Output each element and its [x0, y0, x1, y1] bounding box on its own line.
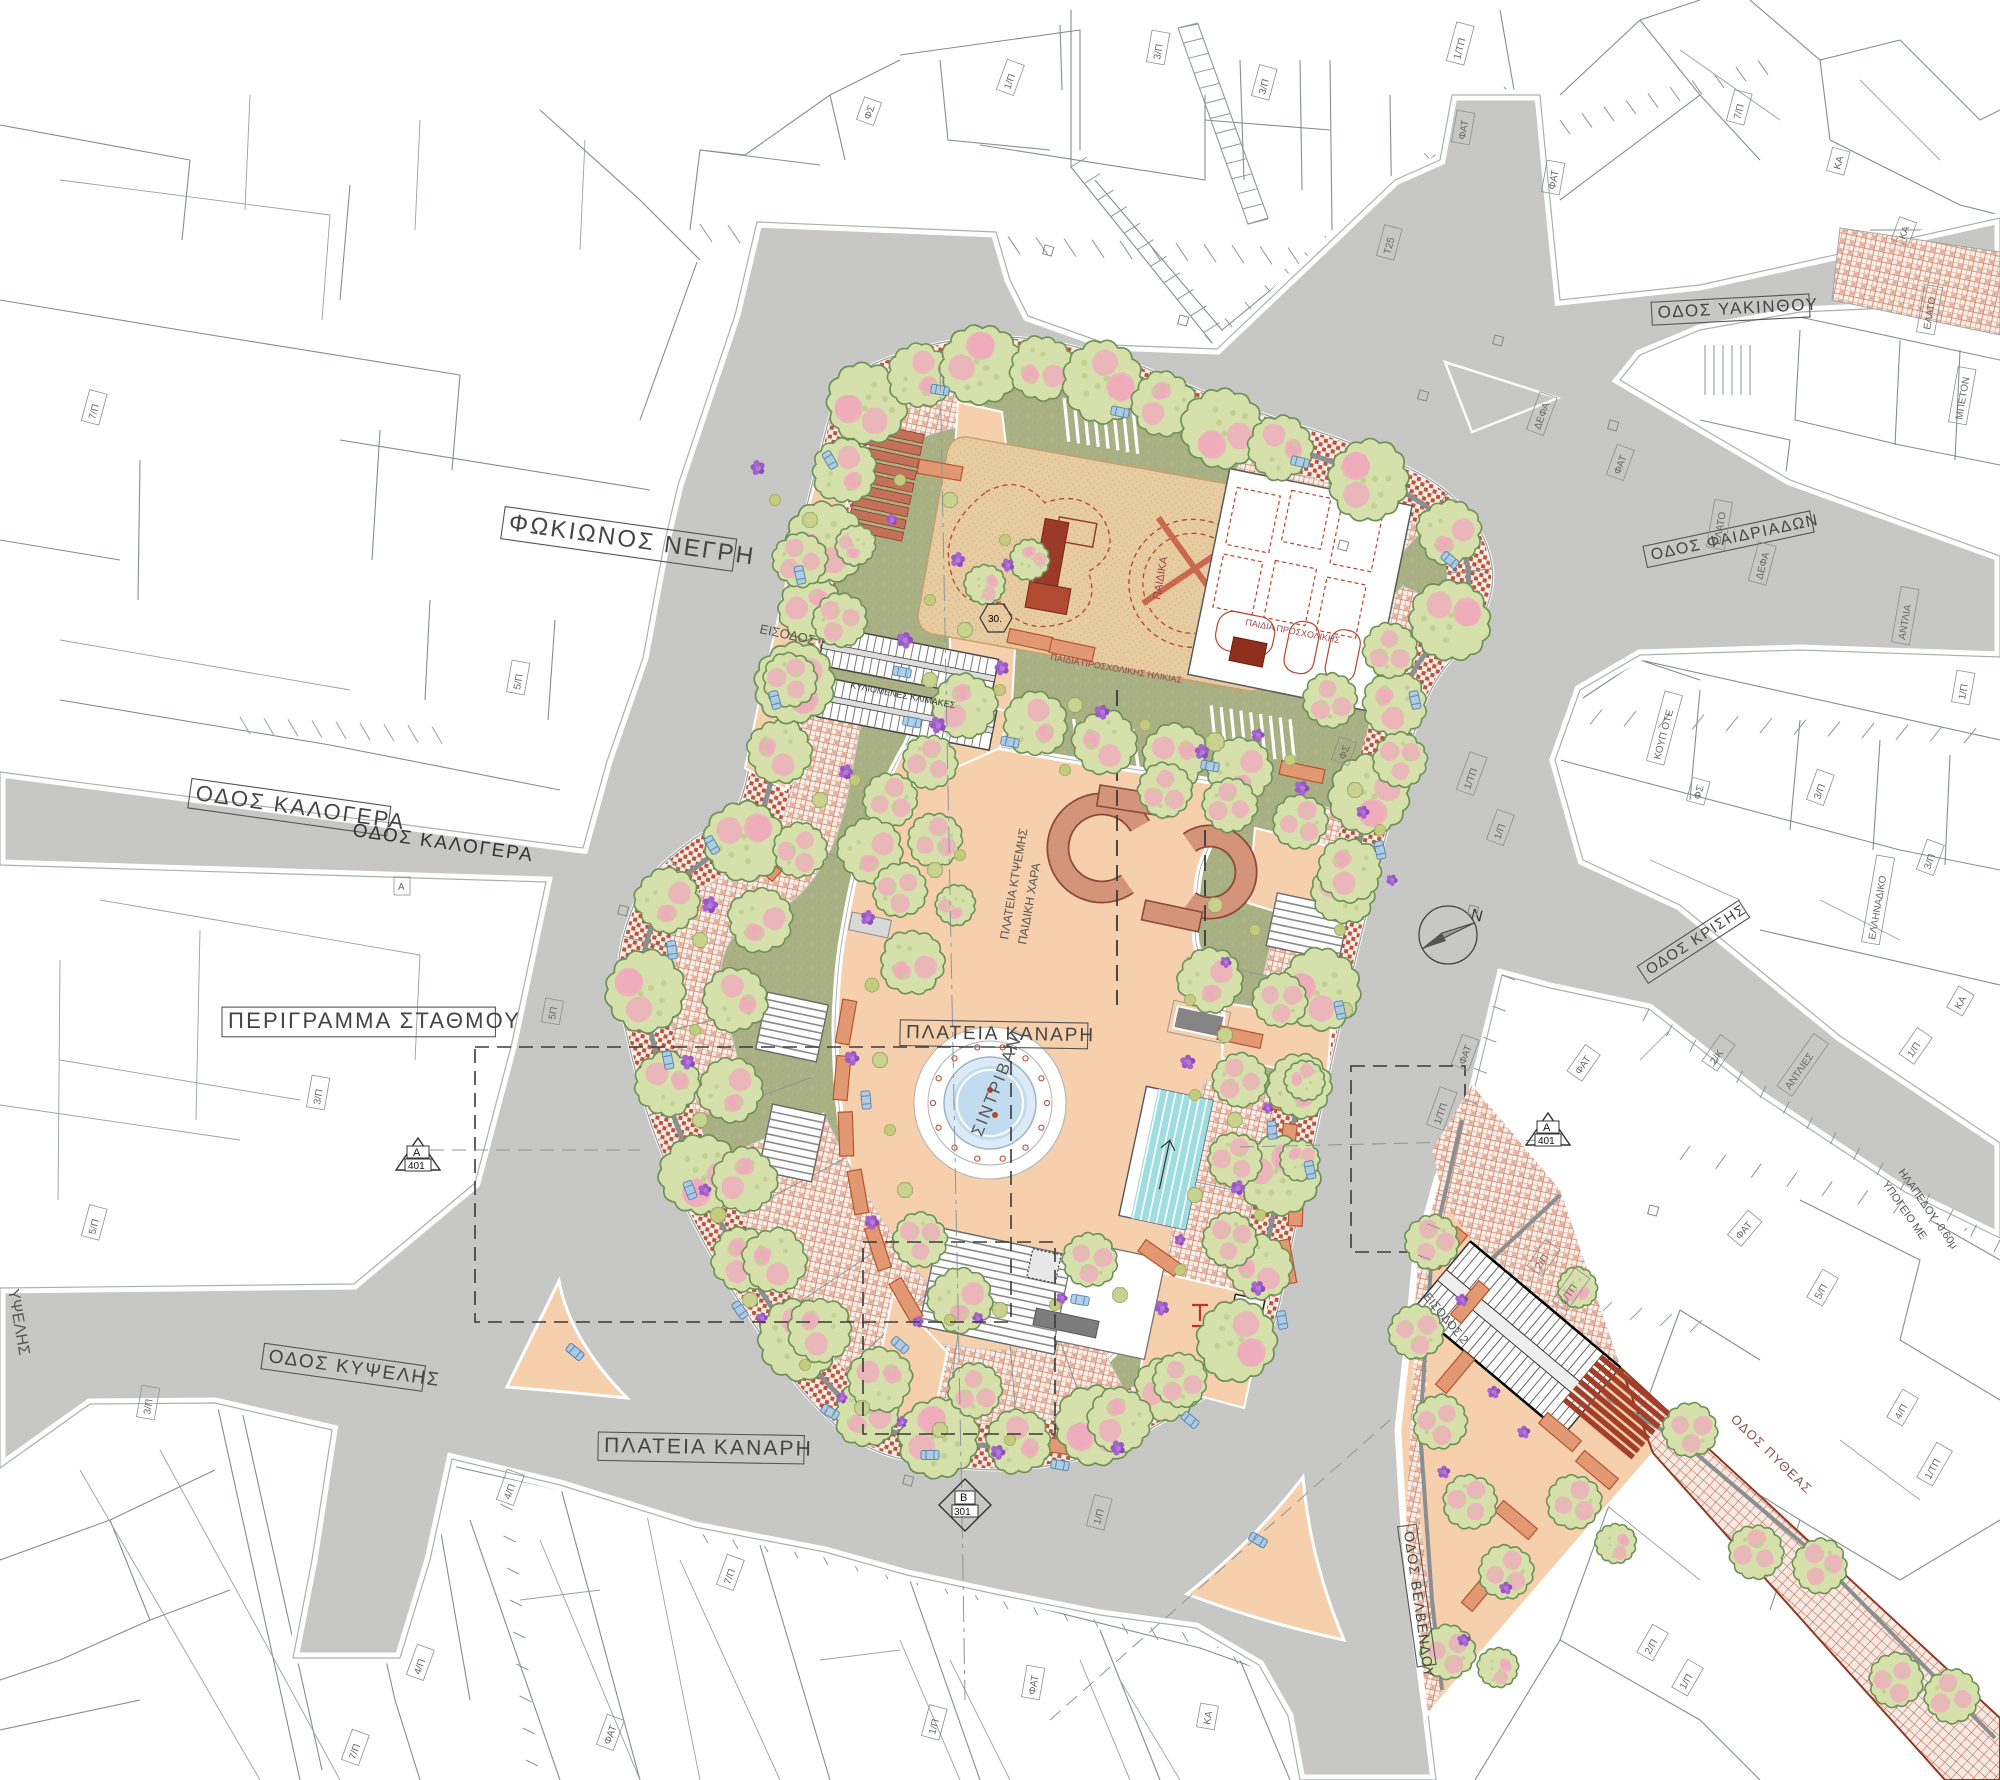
- svg-text:ΠΛΑΤΕΙΑ ΚΑΝΑΡΗ: ΠΛΑΤΕΙΑ ΚΑΝΑΡΗ: [906, 1022, 1095, 1046]
- svg-text:ΠΛΑΤΕΙΑ ΚΑΝΑΡΗ: ΠΛΑΤΕΙΑ ΚΑΝΑΡΗ: [604, 1434, 813, 1461]
- svg-text:ΚΑ: ΚΑ: [1202, 1710, 1215, 1725]
- svg-text:301: 301: [954, 1507, 971, 1518]
- svg-text:Α: Α: [398, 882, 405, 893]
- svg-text:5Π: 5Π: [547, 1006, 560, 1021]
- svg-text:B: B: [960, 1492, 967, 1504]
- svg-text:401: 401: [408, 1161, 425, 1172]
- svg-text:401: 401: [1538, 1136, 1555, 1147]
- svg-text:A: A: [413, 1147, 421, 1159]
- svg-text:30.: 30.: [988, 614, 1002, 625]
- svg-text:A: A: [1543, 1122, 1551, 1134]
- svg-text:ΠΕΡΙΓΡΑΜΜΑ ΣΤΑΘΜΟΥ: ΠΕΡΙΓΡΑΜΜΑ ΣΤΑΘΜΟΥ: [228, 1008, 521, 1033]
